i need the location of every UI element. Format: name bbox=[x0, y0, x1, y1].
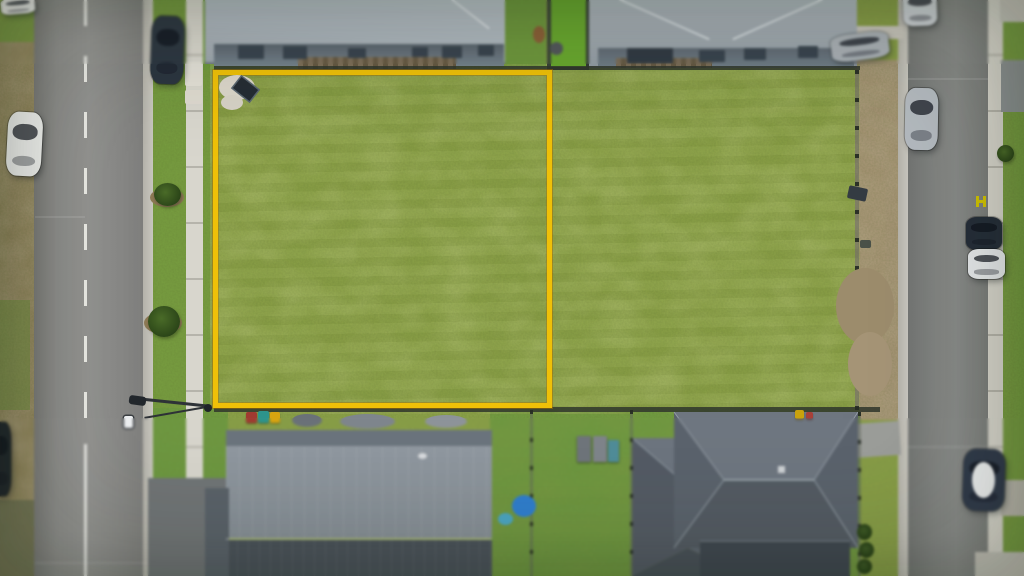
street-tree-1 bbox=[154, 183, 181, 206]
blur-band-bottom bbox=[0, 418, 1024, 576]
aerial-photo: Aerial drone photograph of a vacant resi… bbox=[0, 0, 1024, 576]
concrete-pad-1 bbox=[185, 62, 202, 86]
bare-dirt-patch-right-lot-2 bbox=[848, 332, 892, 396]
streetlight-head-dark bbox=[128, 395, 146, 406]
streetlight-arm-lower bbox=[144, 405, 211, 419]
small-dark-object-right-lot bbox=[860, 240, 871, 248]
blur-band-top bbox=[0, 0, 1024, 64]
bare-soil-patch-boundary-2 bbox=[221, 95, 243, 110]
street-tree-3 bbox=[997, 145, 1014, 162]
hydrant-road-mark-crossbar bbox=[976, 200, 986, 203]
silver-car-right-road-mid bbox=[904, 88, 938, 151]
concrete-pad-2 bbox=[185, 90, 202, 104]
streetlight-base bbox=[204, 404, 212, 412]
dark-car-right-road bbox=[966, 217, 1002, 250]
street-tree-2 bbox=[148, 306, 180, 337]
white-car-right-road-1 bbox=[968, 249, 1005, 279]
white-car-left-shoulder bbox=[5, 111, 43, 177]
box-trailer-right-lot bbox=[847, 185, 868, 202]
